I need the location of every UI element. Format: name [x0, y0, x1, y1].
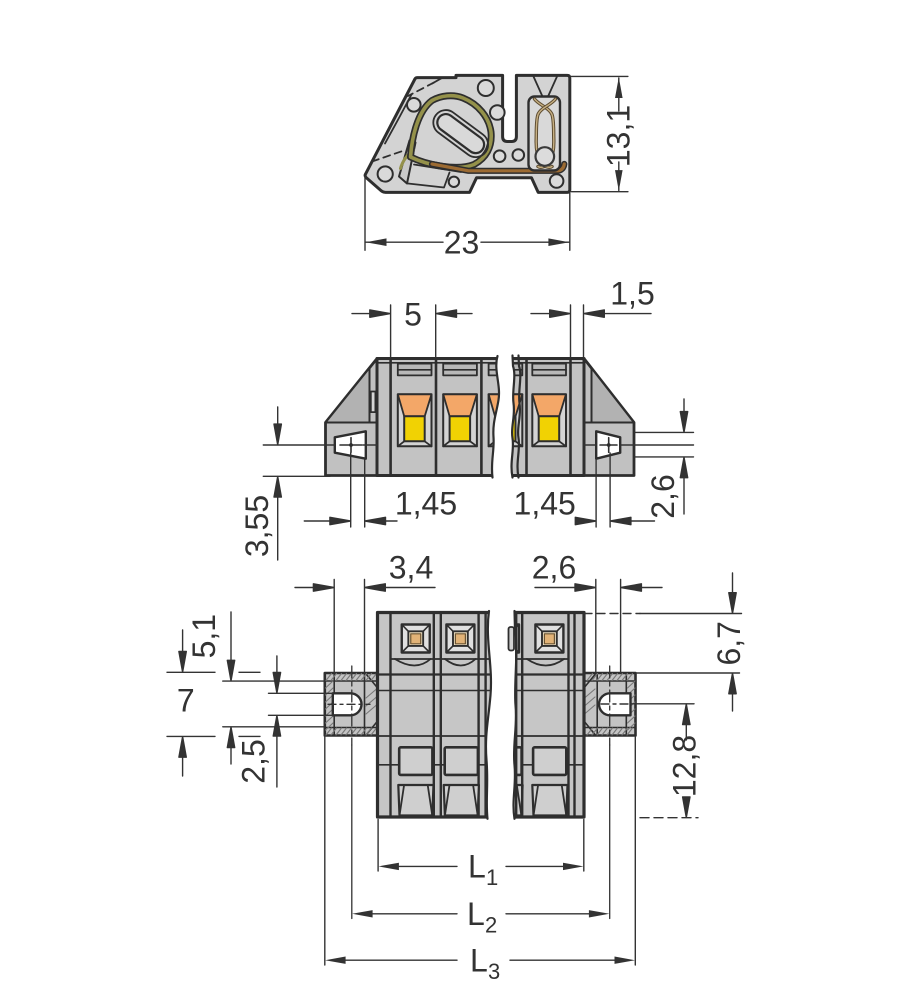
- svg-text:3,55: 3,55: [239, 495, 275, 557]
- svg-text:7: 7: [177, 683, 195, 719]
- svg-text:L: L: [468, 849, 486, 885]
- svg-text:6,7: 6,7: [711, 621, 747, 665]
- svg-text:3: 3: [488, 959, 500, 984]
- svg-text:13,1: 13,1: [601, 105, 637, 167]
- svg-text:5: 5: [404, 297, 422, 333]
- svg-text:12,8: 12,8: [667, 735, 703, 797]
- svg-text:1,45: 1,45: [514, 486, 576, 522]
- svg-text:2,5: 2,5: [236, 739, 272, 783]
- svg-text:3,4: 3,4: [389, 550, 433, 586]
- svg-text:1,45: 1,45: [395, 486, 457, 522]
- svg-text:1,5: 1,5: [610, 276, 654, 312]
- svg-text:2: 2: [485, 913, 497, 938]
- svg-text:5,1: 5,1: [186, 614, 222, 658]
- svg-text:1: 1: [486, 865, 498, 890]
- svg-text:L: L: [470, 943, 488, 979]
- svg-text:23: 23: [444, 225, 480, 261]
- svg-text:L: L: [467, 896, 485, 932]
- svg-text:2,6: 2,6: [645, 474, 681, 518]
- svg-text:2,6: 2,6: [532, 550, 576, 586]
